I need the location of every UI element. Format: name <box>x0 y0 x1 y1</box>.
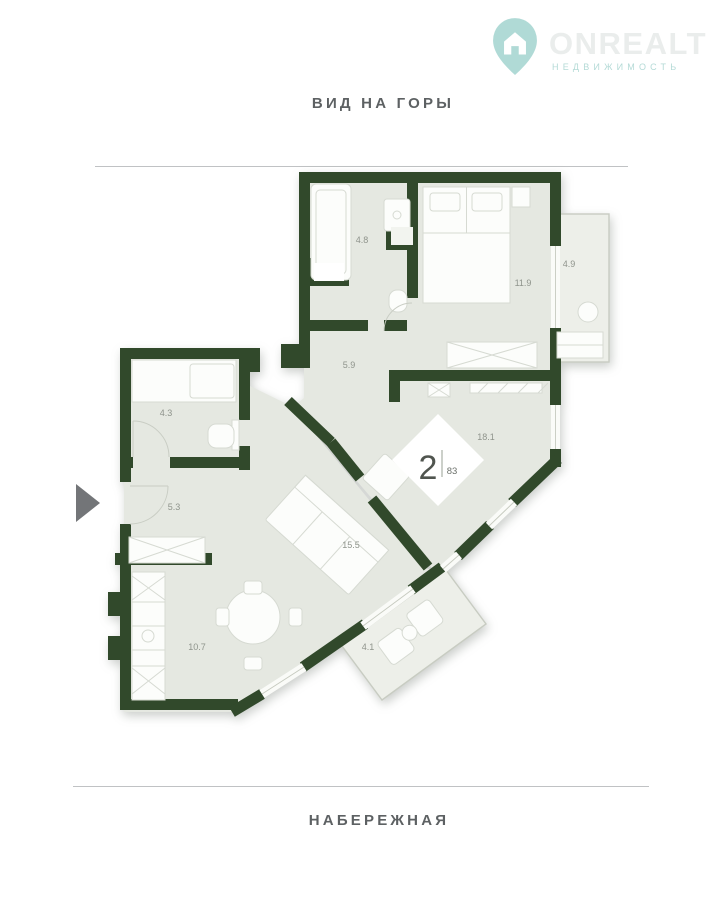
chair <box>216 608 229 626</box>
room-label-balcony-bottom: 4.1 <box>362 642 375 652</box>
room-label-bathroom-top: 4.8 <box>356 235 369 245</box>
pillow <box>430 193 460 211</box>
room-label-lounge: 15.5 <box>342 540 360 550</box>
room-label-bathroom-left: 4.3 <box>160 408 173 418</box>
washing-machine <box>314 263 344 281</box>
floor-plan-page: ONREALT НЕДВИЖИМОСТЬ ВИД НА ГОРЫ НАБЕРЕЖ… <box>0 0 721 910</box>
chair <box>244 581 262 594</box>
room-label-kitchen: 10.7 <box>188 642 206 652</box>
dining-table <box>226 590 280 644</box>
chair <box>244 657 262 670</box>
nightstand <box>512 187 530 207</box>
room-label-living: 18.1 <box>477 432 495 442</box>
room-label-entry: 5.3 <box>168 502 181 512</box>
entrance-arrow-icon <box>76 484 100 522</box>
sink <box>190 364 234 398</box>
shaft <box>391 227 413 245</box>
boiler <box>389 290 407 312</box>
sink <box>384 199 410 231</box>
badge-area: 83 <box>447 466 458 477</box>
room-label-balcony-right: 4.9 <box>563 259 576 269</box>
toilet <box>208 424 234 448</box>
room-label-bedroom: 11.9 <box>515 278 532 288</box>
room-label-hallway: 5.9 <box>343 360 356 370</box>
pillow <box>472 193 502 211</box>
floor-plan: 2 83 4.8 11.9 4.9 5.9 4.3 18.1 15.5 5.3 … <box>0 0 721 910</box>
badge-rooms: 2 <box>419 449 438 487</box>
balcony-chair <box>578 302 598 322</box>
chair <box>289 608 302 626</box>
